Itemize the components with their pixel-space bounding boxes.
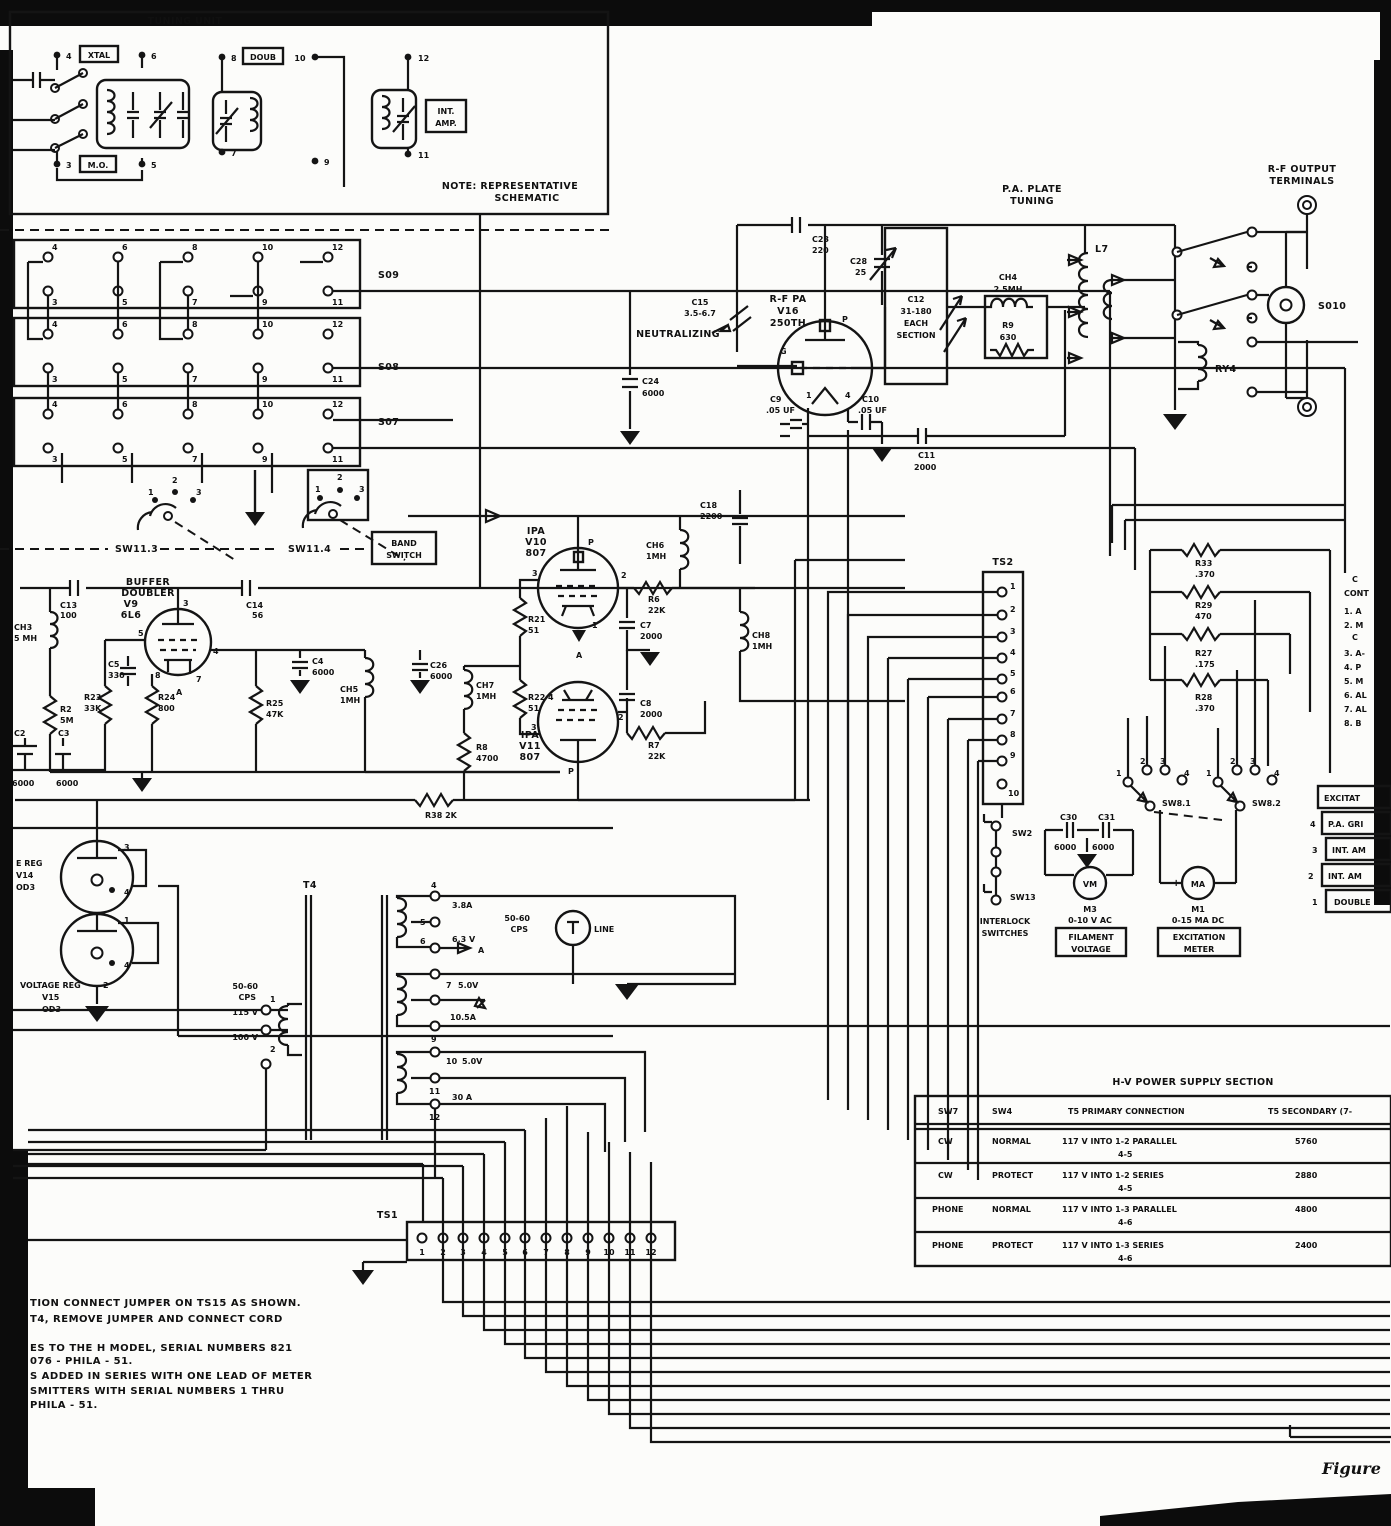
s08-pin: 10: [262, 320, 274, 329]
t4-label: T4: [303, 880, 317, 891]
excitation-meter-2: METER: [1184, 945, 1215, 954]
s010-label: S010: [1318, 301, 1346, 312]
r22-value: 51: [528, 704, 540, 713]
wire-label-s09: S09: [378, 270, 399, 281]
v11-pin: 3: [531, 723, 537, 732]
c18-value: 2200: [700, 512, 723, 521]
t4-a-mark: A: [478, 946, 485, 955]
reg1-label-1: E REG: [16, 859, 42, 868]
c4-value: 6000: [312, 668, 335, 677]
int-amp-assembly: INT. AMP.: [372, 60, 466, 152]
c23-name: C23: [812, 235, 829, 244]
c3-name: C3: [58, 729, 69, 738]
ch3-value: 5 MH: [14, 634, 37, 643]
hv-cell: 4-6: [1118, 1254, 1133, 1263]
tuning-unit: TUNING UNIT 4 XTAL 6 8 DOUB 10 12 3 M.O.…: [0, 12, 612, 588]
pin-11: 11: [418, 151, 430, 160]
c7-value: 2000: [640, 632, 663, 641]
hv-cell: NORMAL: [992, 1137, 1031, 1146]
c7-name: C7: [640, 621, 651, 630]
hv-cell: PROTECT: [992, 1241, 1034, 1250]
r7-value: 22K: [648, 752, 666, 761]
wafer-pos: 2: [337, 473, 343, 482]
s09-pin: 5: [122, 298, 128, 307]
pin-10: 10: [294, 54, 306, 63]
ch5-name: CH5: [340, 685, 359, 694]
hv-cell: 117 V INTO 1-2 SERIES: [1062, 1171, 1164, 1180]
c18-name: C18: [700, 501, 717, 510]
r27-value: .175: [1195, 660, 1215, 669]
c24-value: 6000: [642, 389, 665, 398]
ts1-pin: 1: [419, 1248, 425, 1257]
ts2-pin: 8: [1010, 730, 1016, 739]
hv-header: SW4: [992, 1107, 1013, 1116]
ts2-pin: 3: [1010, 627, 1016, 636]
ch6-value: 1MH: [646, 552, 666, 561]
hv-cell: NORMAL: [992, 1205, 1031, 1214]
s07-pin: 4: [52, 400, 58, 409]
s09-pin: 3: [52, 298, 58, 307]
ex-row-text: INT. AM: [1332, 846, 1366, 855]
schematic-canvas: TUNING UNIT 4 XTAL 6 8 DOUB 10 12 3 M.O.…: [0, 0, 1391, 1526]
v11-pin: 2: [618, 713, 624, 722]
sw8-pos: 1: [1116, 769, 1122, 778]
r8-name: R8: [476, 743, 488, 752]
r24-value: 800: [158, 704, 175, 713]
c12-section: SECTION: [896, 331, 935, 340]
v16-pin-p: P: [842, 315, 848, 324]
t4-100v: 100 V: [232, 1033, 258, 1042]
v11-pin: 4: [548, 693, 554, 702]
s09-pin: 4: [52, 243, 58, 252]
wafer-pos: 1: [315, 485, 321, 494]
ts2-pin: 7: [1010, 709, 1016, 718]
mo-label: M.O.: [88, 161, 109, 170]
c14-value: 56: [252, 611, 264, 620]
s07-pin: 11: [332, 455, 344, 464]
meter-shunt-resistors: R33 .370 R29 470 R27 .175 R28 .370: [1150, 544, 1330, 773]
v9-pin: 4: [213, 647, 219, 656]
ts2-pin: 4: [1010, 648, 1016, 657]
hv-cell: 4-6: [1118, 1218, 1133, 1227]
notes-block: TION CONNECT JUMPER ON TS15 AS SHOWN. T4…: [30, 1298, 312, 1411]
t4-pri-pin: 2: [270, 1045, 276, 1054]
ch7-name: CH7: [476, 681, 494, 690]
ry4-label: RY4: [1215, 364, 1237, 375]
hv-cell: 117 V INTO 1-2 PARALLEL: [1062, 1137, 1177, 1146]
tuning-unit-title: TUNING UNIT: [148, 16, 223, 27]
s08-pin: 11: [332, 375, 344, 384]
c15-value: 3.5-6.7: [684, 309, 716, 318]
excitation-table-header: EXCITAT: [1324, 794, 1361, 803]
note-line: PHILA - 51.: [30, 1400, 98, 1411]
v11-label-3: 807: [519, 752, 540, 763]
c9-name: C9: [770, 395, 782, 404]
ch3-name: CH3: [14, 623, 32, 632]
r2-name: R2: [60, 705, 72, 714]
v10-label-1: IPA: [527, 526, 545, 537]
vm-meter-glyph: VM: [1083, 880, 1097, 889]
s07-pin: 9: [262, 455, 268, 464]
legend-line: 3. A-: [1344, 649, 1365, 658]
c23-value: 220: [812, 246, 829, 255]
c28-name: C28: [850, 257, 867, 266]
m3-label: M3: [1083, 905, 1097, 914]
s07-pin: 12: [332, 400, 343, 409]
note-line: SMITTERS WITH SERIAL NUMBERS 1 THRU: [30, 1386, 285, 1397]
r6-name: R6: [648, 595, 660, 604]
hv-header: T5 PRIMARY CONNECTION: [1068, 1107, 1185, 1116]
v16-pin-g: G: [780, 347, 787, 356]
lamp-cps-2: CPS: [511, 925, 529, 934]
m1-label: M1: [1191, 905, 1205, 914]
v16-pin: 4: [845, 391, 851, 400]
note-line-2: SCHEMATIC: [495, 193, 560, 204]
int-amp-label-1: INT.: [438, 107, 455, 116]
t4-sec-pin: 4: [431, 881, 437, 890]
v10-pin: 1: [592, 621, 598, 630]
sw8-pos: 1: [1206, 769, 1212, 778]
vr2-pin: 2: [103, 981, 109, 990]
c10-name: C10: [862, 395, 879, 404]
t4-sec-pin: 11: [429, 1087, 441, 1096]
ex-row-text: P.A. GRI: [1328, 820, 1363, 829]
wafer-pos: 3: [196, 488, 202, 497]
hv-cell: 4-5: [1118, 1150, 1133, 1159]
r9-name: R9: [1002, 321, 1014, 330]
pin-4: 4: [66, 52, 72, 61]
c13-name: C13: [60, 601, 77, 610]
tube-vr-2: 1 4: [61, 913, 158, 1022]
r21-name: R21: [528, 615, 546, 624]
interlock-label-1: INTERLOCK: [980, 917, 1031, 926]
ts2-pin: 6: [1010, 687, 1016, 696]
excitation-meter-1: EXCITATION: [1173, 933, 1226, 942]
legend-line: 4. P: [1344, 663, 1361, 672]
r2-value: 5M: [60, 716, 74, 725]
note-line: S ADDED IN SERIES WITH ONE LEAD OF METER: [30, 1371, 312, 1382]
c28-value: 25: [855, 268, 867, 277]
c9-value: .05 UF: [766, 406, 795, 415]
s09-pin: 6: [122, 243, 128, 252]
doub-label: DOUB: [250, 53, 276, 62]
c26-value: 6000: [430, 672, 453, 681]
ch7-value: 1MH: [476, 692, 496, 701]
v16-label-2: V16: [777, 306, 799, 317]
hv-cell: 117 V INTO 1-3 SERIES: [1062, 1241, 1164, 1250]
legend-cut: C CONT 1. A 2. M C 3. A- 4. P 5. M 6. AL…: [1112, 505, 1391, 912]
t4-cps-2: CPS: [239, 993, 257, 1002]
reg1-label-2: V14: [16, 871, 34, 880]
t4-w2-voltage: 5.0V: [458, 981, 479, 990]
v11-pin-p: P: [568, 767, 574, 776]
v10-pin: 3: [532, 569, 538, 578]
c5-name: C5: [108, 660, 120, 669]
sw8-pos: 2: [1230, 757, 1236, 766]
reg2-label-1: VOLTAGE REG: [20, 981, 81, 990]
hv-cell: PHONE: [932, 1241, 964, 1250]
c11-value: 2000: [914, 463, 937, 472]
l7-label: L7: [1095, 244, 1108, 255]
band-switch-box-1: BAND: [391, 539, 417, 548]
ex-row-num: 4: [1310, 820, 1316, 829]
s07-pin: 5: [122, 455, 128, 464]
s09-pin: 10: [262, 243, 274, 252]
s08-pin: 12: [332, 320, 343, 329]
hv-header: SW7: [938, 1107, 958, 1116]
r7-name: R7: [648, 741, 660, 750]
r25-value: 47K: [266, 710, 284, 719]
c24-name: C24: [642, 377, 659, 386]
filament-voltage-2: VOLTAGE: [1071, 945, 1111, 954]
legend-line: 7. AL: [1344, 705, 1367, 714]
c2-name: C2: [14, 729, 25, 738]
v9-label-2: DOUBLER: [121, 588, 175, 599]
rf-output-label-2: TERMINALS: [1269, 176, 1334, 187]
r38-label: R38 2K: [425, 811, 458, 820]
t4-w3-current: 30 A: [452, 1093, 473, 1102]
hv-cell: 2400: [1295, 1241, 1318, 1250]
c2-value: 6000: [12, 779, 35, 788]
sw8-1-label: SW8.1: [1162, 799, 1191, 808]
interlock-label-2: SWITCHES: [982, 929, 1029, 938]
c13-value: 100: [60, 611, 77, 620]
pin-8: 8: [231, 54, 237, 63]
pin-9: 9: [324, 158, 330, 167]
pin-6: 6: [151, 52, 157, 61]
r21-value: 51: [528, 626, 540, 635]
v9-pin: 8: [155, 671, 161, 680]
pa-plate-tuning-2: TUNING: [1010, 196, 1054, 207]
tuning-switch-contacts: [13, 58, 87, 164]
v9-label-4: 6L6: [121, 610, 141, 621]
c12-each: EACH: [904, 319, 928, 328]
s08-pin: 5: [122, 375, 128, 384]
ch5-value: 1MH: [340, 696, 360, 705]
r27-name: R27: [1195, 649, 1212, 658]
wire-label-s07: S07: [378, 417, 399, 428]
pa-stage: P.A. PLATE TUNING C23 220 C28 25 C15 3.5…: [620, 184, 1175, 800]
filament-voltmeter: C30 C31 6000 6000 VM M3 0-10 V AC FILAME…: [1045, 813, 1133, 956]
xtal-tank-assembly: [97, 80, 189, 148]
t4-w1-current: 3.8A: [452, 901, 473, 910]
c11-name: C11: [918, 451, 935, 460]
v9-pin: 7: [196, 675, 202, 684]
int-amp-label-2: AMP.: [435, 119, 457, 128]
m1-range: 0-15 MA DC: [1172, 916, 1224, 925]
hv-cell: CW: [938, 1171, 953, 1180]
c10-value: .05 UF: [858, 406, 887, 415]
line-lamp-label: LINE: [594, 925, 614, 934]
ch4-name: CH4: [999, 273, 1018, 282]
sw8-2-label: SW8.2: [1252, 799, 1281, 808]
t4-sec-pin: 7: [446, 981, 452, 990]
tube-vr-1: 3 4: [61, 828, 146, 913]
hv-table-title: H-V POWER SUPPLY SECTION: [1112, 1077, 1273, 1088]
ch4-value: 2.5MH: [994, 285, 1023, 294]
c12-name: C12: [907, 295, 924, 304]
ipa-stages: IPA V10 807 P 3 2 1 A R21 51 R22 51 CH6 …: [408, 490, 905, 800]
r29-name: R29: [1195, 601, 1213, 610]
reg2-label-2: V15: [42, 993, 60, 1002]
ts2-pin: 10: [1008, 789, 1020, 798]
legend-line: 5. M: [1344, 677, 1363, 686]
band-switch: 1 2 3 1 2 3 SW11.3 SW11.4 BAND SWITCH: [0, 470, 436, 564]
note-line: ES TO THE H MODEL, SERIAL NUMBERS 821: [30, 1343, 293, 1354]
s09-pin: 9: [262, 298, 268, 307]
socket-s08: 4681012 357911 S08: [44, 320, 400, 384]
v16-label-1: R-F PA: [770, 294, 807, 305]
r29-value: 470: [1195, 612, 1212, 621]
r23-name: R23: [84, 693, 101, 702]
r8-value: 4700: [476, 754, 499, 763]
wafer-pos: 1: [148, 488, 154, 497]
legend-line: 6. AL: [1344, 691, 1367, 700]
wafer-pos: 3: [359, 485, 365, 494]
ts1-terminals: 1 2 3 4 5 6 7 8 9 10 11 12: [418, 1234, 657, 1258]
r33-value: .370: [1195, 570, 1215, 579]
sw11-4-label: SW11.4: [288, 544, 331, 555]
s09-pin: 7: [192, 298, 198, 307]
ts2-pin: 5: [1010, 669, 1016, 678]
sw8-pos: 2: [1140, 757, 1146, 766]
c26-name: C26: [430, 661, 447, 670]
t4-sec-pin: 9: [431, 1035, 437, 1044]
s07-pin: 8: [192, 400, 198, 409]
reg1-label-3: OD3: [16, 883, 35, 892]
legend-line: 1. A: [1344, 607, 1362, 616]
legend-line: 8. B: [1344, 719, 1362, 728]
r6-value: 22K: [648, 606, 666, 615]
figure-caption: Figure: [1321, 1459, 1381, 1478]
sw13-label: SW13: [1010, 893, 1036, 902]
sw2-label: SW2: [1012, 829, 1032, 838]
v10-label-3: 807: [525, 548, 546, 559]
s07-pin: 10: [262, 400, 274, 409]
t4-w1-voltage: 6.3 V: [452, 935, 476, 944]
s08-pin: 8: [192, 320, 198, 329]
r28-value: .370: [1195, 704, 1215, 713]
hv-header: T5 SECONDARY (7-: [1268, 1107, 1352, 1116]
buffer-doubler-stage: C13 100 C14 56 BUFFER DOUBLER V9 6L6 3 5…: [12, 577, 810, 820]
note-line: 076 - PHILA - 51.: [30, 1356, 133, 1367]
v10-pin-a: A: [576, 651, 583, 660]
m3-range: 0-10 V AC: [1068, 916, 1112, 925]
excitation-meter: MA + - M1 0-15 MA DC EXCITATION METER: [1158, 810, 1240, 956]
socket-s07: 4681012 357911 S07: [44, 400, 400, 464]
pa-plate-tuning-1: P.A. PLATE: [1002, 184, 1062, 195]
s08-pin: 4: [52, 320, 58, 329]
t4-sec-pin: 6: [420, 937, 426, 946]
s07-pin: 6: [122, 400, 128, 409]
hv-cell: 117 V INTO 1-3 PARALLEL: [1062, 1205, 1177, 1214]
r23-value: 33K: [84, 704, 102, 713]
s07-pin: 7: [192, 455, 198, 464]
hv-cell: CW: [938, 1137, 953, 1146]
note-line-1: NOTE: REPRESENTATIVE: [442, 181, 578, 192]
s08-pin: 6: [122, 320, 128, 329]
c30-value: 6000: [1054, 843, 1077, 852]
relay-ry4: RY4: [1163, 225, 1358, 430]
c31-value: 6000: [1092, 843, 1115, 852]
interlock-switches: SW2 SW13 INTERLOCK SWITCHES: [980, 804, 1036, 938]
legend-line: C: [1352, 633, 1358, 642]
c30-name: C30: [1060, 813, 1077, 822]
r9-value: 630: [1000, 333, 1017, 342]
t4-w2-current: 10.5A: [450, 1013, 477, 1022]
tube-v9: 3 5 4 8 7 A: [138, 588, 219, 697]
hv-cell: 4-5: [1118, 1184, 1133, 1193]
pin-3: 3: [66, 161, 72, 170]
filament-voltage-1: FILAMENT: [1068, 933, 1114, 942]
c8-name: C8: [640, 699, 652, 708]
hv-cell: 5760: [1295, 1137, 1318, 1146]
c14-name: C14: [246, 601, 263, 610]
ts2-pin: 9: [1010, 751, 1016, 760]
ch6-name: CH6: [646, 541, 665, 550]
ex-row-num: 2: [1308, 872, 1314, 881]
ts2-terminals: 1 2 3 4 5 6 7 8 9 10: [998, 582, 1020, 798]
c3-value: 6000: [56, 779, 79, 788]
c4-name: C4: [312, 657, 324, 666]
c15-name: C15: [691, 298, 708, 307]
socket-s09: 4681012 357911 S09: [44, 243, 400, 307]
ts2-pin: 1: [1010, 582, 1016, 591]
l7-coil: [1067, 225, 1175, 363]
v11-label-2: V11: [519, 741, 541, 752]
r25-name: R25: [266, 699, 284, 708]
v9-pin-a: A: [176, 688, 183, 697]
r28-name: R28: [1195, 693, 1213, 702]
legend-line: CONT: [1344, 589, 1369, 598]
c31-name: C31: [1098, 813, 1115, 822]
lamp-cps-1: 50-60: [504, 914, 530, 923]
vr2-pin: 4: [124, 961, 130, 970]
hv-cell: PROTECT: [992, 1171, 1034, 1180]
r33-name: R33: [1195, 559, 1212, 568]
ex-row-text: INT. AM: [1328, 872, 1362, 881]
sw11-3-label: SW11.3: [115, 544, 158, 555]
s08-pin: 3: [52, 375, 58, 384]
ex-row-num: 1: [1312, 898, 1318, 907]
ch8-name: CH8: [752, 631, 771, 640]
v9-label-3: V9: [124, 599, 139, 610]
s07-pin: 3: [52, 455, 58, 464]
legend-line: 2. M: [1344, 621, 1363, 630]
v9-pin: 5: [138, 629, 144, 638]
ts1-label: TS1: [377, 1210, 398, 1221]
hv-cell: 4800: [1295, 1205, 1318, 1214]
t4-w3-voltage: 5.0V: [462, 1057, 483, 1066]
band-switch-box-2: SWITCH: [386, 551, 422, 560]
t4-cps-1: 50-60: [232, 982, 258, 991]
hv-cell: 2880: [1295, 1171, 1318, 1180]
ts2-pin: 2: [1010, 605, 1016, 614]
note-line: TION CONNECT JUMPER ON TS15 AS SHOWN.: [30, 1298, 301, 1309]
s09-pin: 12: [332, 243, 343, 252]
vr1-pin: 4: [124, 888, 130, 897]
xtal-label: XTAL: [88, 51, 110, 60]
s09-pin: 8: [192, 243, 198, 252]
neutralizing-label: NEUTRALIZING: [636, 329, 720, 340]
s08-pin: 7: [192, 375, 198, 384]
t4-pri-pin: 1: [270, 995, 276, 1004]
r24-name: R24: [158, 693, 176, 702]
rf-output-terminals: S010: [1268, 196, 1346, 416]
t4-sec-pin: 10: [446, 1057, 458, 1066]
v10-label-2: V10: [525, 537, 547, 548]
ma-meter-glyph: MA: [1191, 880, 1206, 889]
